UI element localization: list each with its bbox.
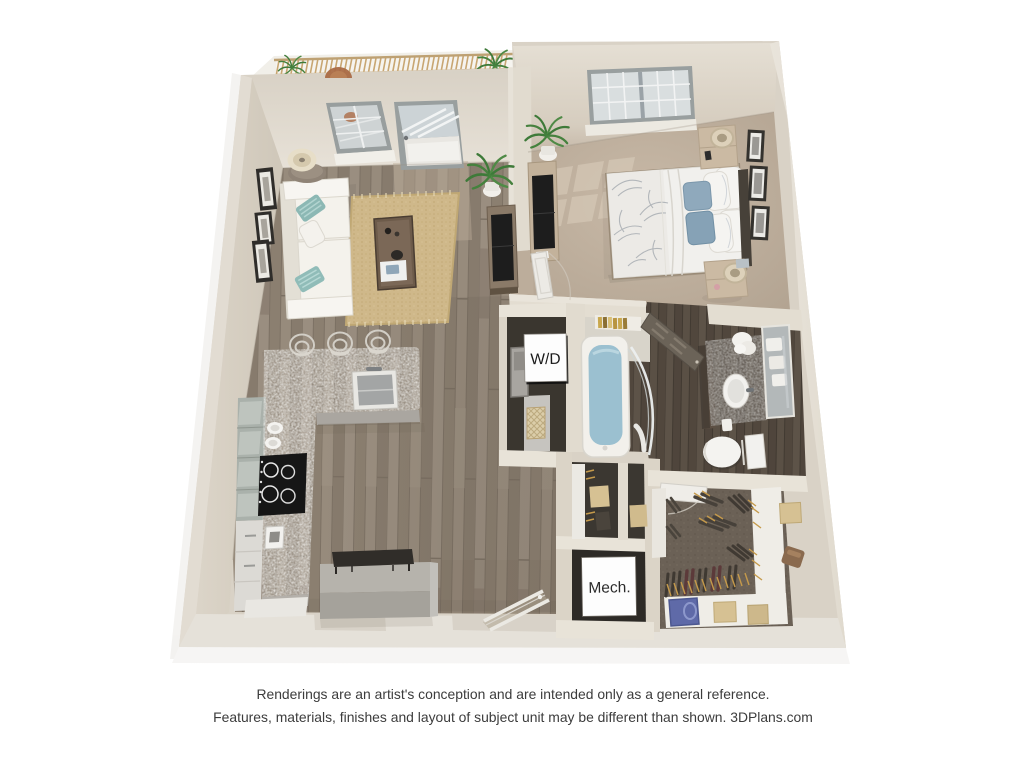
svg-text:Renderings are an artist's con: Renderings are an artist's conception an…	[256, 686, 769, 702]
svg-text:W/D: W/D	[530, 351, 560, 369]
svg-text:Mech.: Mech.	[588, 579, 631, 597]
svg-text:Features, materials, finishes: Features, materials, finishes and layout…	[213, 709, 813, 725]
